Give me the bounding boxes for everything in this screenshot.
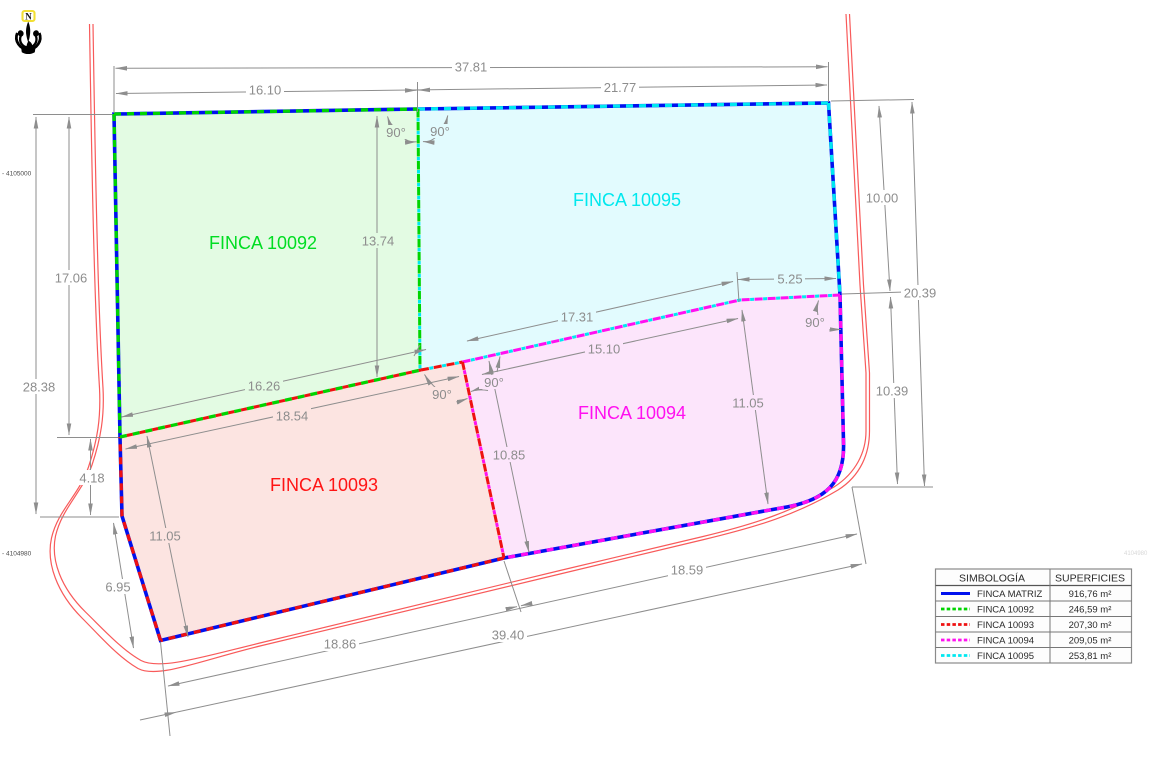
svg-text:11.05: 11.05 [732,396,764,411]
svg-text:90°: 90° [805,315,825,330]
svg-text:FINCA 10092: FINCA 10092 [977,605,1034,616]
svg-text:90°: 90° [430,124,450,139]
svg-text:18.59: 18.59 [671,563,704,578]
svg-text:28.38: 28.38 [23,380,56,395]
svg-text:90°: 90° [484,375,504,390]
svg-text:10.39: 10.39 [876,384,909,399]
svg-text:15.10: 15.10 [588,342,621,357]
svg-text:FINCA 10094: FINCA 10094 [578,403,686,423]
svg-text:246,59 m²: 246,59 m² [1069,605,1112,616]
svg-text:90°: 90° [432,387,452,402]
svg-text:5.25: 5.25 [777,272,802,287]
svg-text:209,05 m²: 209,05 m² [1069,636,1112,647]
svg-text:6.95: 6.95 [105,580,130,595]
svg-text:20.39: 20.39 [904,286,937,301]
svg-text:SUPERFICIES: SUPERFICIES [1055,573,1125,585]
svg-text:17.06: 17.06 [55,271,88,286]
svg-text:37.81: 37.81 [455,60,488,75]
svg-text:90°: 90° [386,125,406,140]
svg-text:13.74: 13.74 [362,234,395,249]
svg-text:18.54: 18.54 [276,409,309,424]
svg-text:916,76 m²: 916,76 m² [1069,589,1112,600]
svg-text:16.10: 16.10 [249,83,282,98]
svg-text:FINCA 10095: FINCA 10095 [573,190,681,210]
svg-text:FINCA 10093: FINCA 10093 [270,475,378,495]
svg-text:18.86: 18.86 [324,637,357,652]
svg-text:39.40: 39.40 [492,628,525,643]
svg-text:FINCA MATRIZ: FINCA MATRIZ [977,589,1042,600]
svg-text:- 4105000: - 4105000 [2,171,32,178]
svg-text:FINCA 10095: FINCA 10095 [977,651,1034,662]
svg-text:FINCA 10094: FINCA 10094 [977,636,1034,647]
svg-text:207,30 m²: 207,30 m² [1069,620,1112,631]
svg-text:SIMBOLOGÍA: SIMBOLOGÍA [959,572,1025,585]
svg-text:17.31: 17.31 [561,310,594,325]
svg-text:4104980: 4104980 [1124,551,1148,557]
svg-text:253,81 m²: 253,81 m² [1069,651,1112,662]
svg-text:4.18: 4.18 [79,471,104,486]
svg-text:10.85: 10.85 [493,448,526,463]
svg-text:21.77: 21.77 [604,80,637,95]
svg-text:N: N [25,12,32,22]
svg-text:- 4104980: - 4104980 [2,551,32,558]
svg-text:16.26: 16.26 [248,379,281,394]
svg-text:FINCA 10093: FINCA 10093 [977,620,1034,631]
svg-text:FINCA 10092: FINCA 10092 [209,233,317,253]
svg-text:10.00: 10.00 [866,191,899,206]
svg-text:11.05: 11.05 [149,529,181,544]
